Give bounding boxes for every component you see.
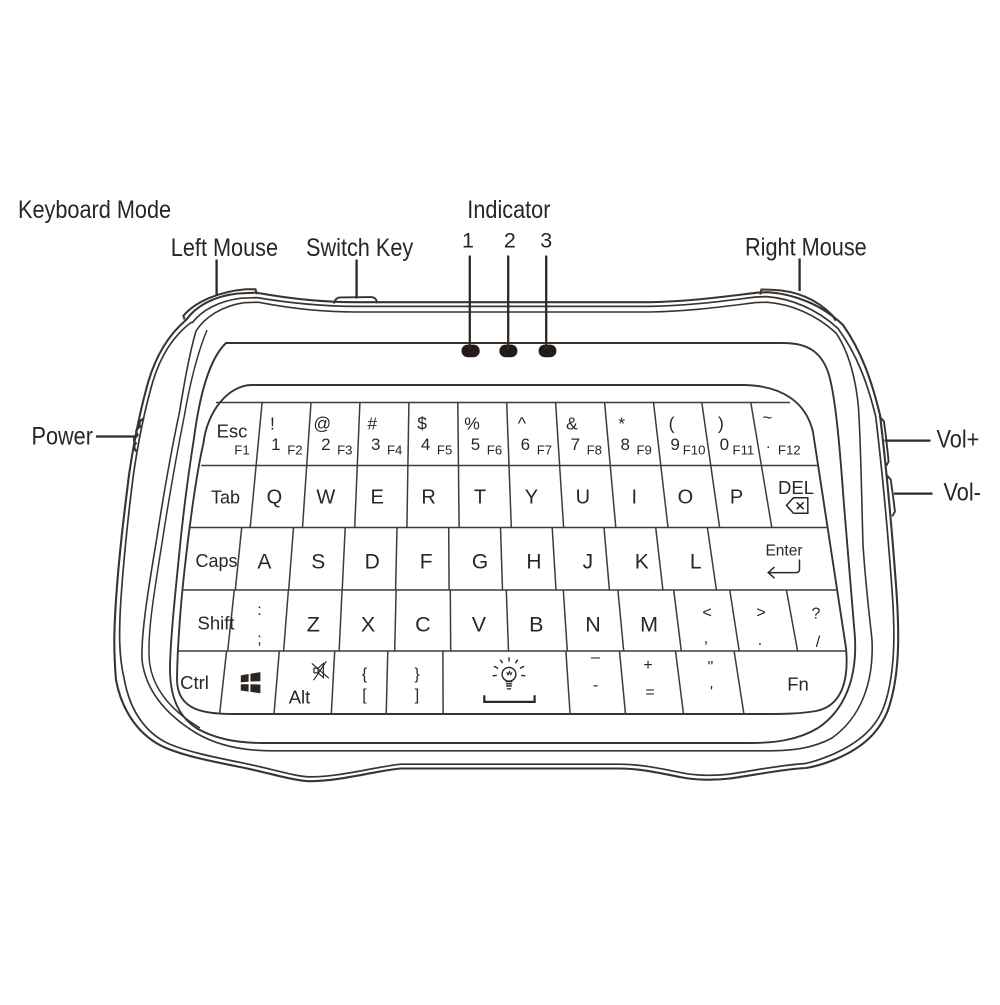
svg-text:E: E — [371, 487, 384, 509]
svg-text:F8: F8 — [587, 443, 602, 458]
svg-text:6: 6 — [521, 435, 530, 454]
svg-text:{: { — [362, 666, 368, 683]
svg-text:F3: F3 — [337, 443, 352, 458]
svg-text:<: < — [702, 605, 711, 622]
svg-text:$: $ — [417, 414, 427, 434]
svg-text:]: ] — [415, 687, 419, 704]
svg-text:?: ? — [812, 606, 821, 623]
svg-text:S: S — [311, 551, 325, 574]
svg-text:Vol+: Vol+ — [937, 425, 980, 453]
svg-text:Tab: Tab — [211, 487, 240, 507]
svg-text:–: – — [591, 649, 600, 666]
svg-text::: : — [257, 602, 261, 619]
svg-text:Alt: Alt — [289, 687, 311, 708]
svg-text:8: 8 — [620, 435, 629, 454]
svg-text:1: 1 — [462, 229, 474, 253]
svg-text:B: B — [529, 613, 543, 637]
svg-text:Power: Power — [32, 422, 94, 450]
svg-text:U: U — [576, 487, 590, 509]
svg-text:+: + — [643, 657, 652, 674]
svg-text:): ) — [718, 414, 724, 434]
svg-text:F11: F11 — [733, 443, 755, 458]
svg-text:}: } — [414, 666, 420, 683]
svg-text:F2: F2 — [287, 443, 302, 458]
svg-text:DEL: DEL — [778, 477, 814, 498]
svg-text:%: % — [464, 414, 480, 434]
svg-text:Y: Y — [525, 487, 538, 509]
svg-text:3: 3 — [540, 229, 552, 253]
svg-text:F6: F6 — [487, 443, 502, 458]
svg-text:9: 9 — [670, 435, 679, 454]
svg-text:F9: F9 — [637, 443, 652, 458]
svg-text:Ctrl: Ctrl — [180, 672, 209, 693]
svg-text:P: P — [730, 487, 743, 509]
svg-text:.: . — [758, 632, 762, 649]
svg-text:F5: F5 — [437, 443, 452, 458]
svg-text:Enter: Enter — [765, 543, 802, 560]
svg-text:/: / — [816, 634, 821, 651]
svg-text:F4: F4 — [387, 443, 402, 458]
svg-text:2: 2 — [321, 435, 330, 454]
svg-text:1: 1 — [271, 435, 280, 454]
svg-text:J: J — [583, 551, 594, 574]
svg-text:N: N — [585, 613, 601, 637]
svg-text:Keyboard Mode: Keyboard Mode — [18, 196, 171, 224]
svg-text:Q: Q — [267, 487, 283, 509]
svg-text:·: · — [766, 438, 771, 455]
svg-text:F7: F7 — [537, 443, 552, 458]
svg-text:[: [ — [362, 687, 367, 704]
svg-text:M: M — [640, 613, 658, 637]
svg-text:4: 4 — [421, 435, 430, 454]
svg-text:Vol-: Vol- — [944, 478, 981, 506]
svg-text:Esc: Esc — [217, 420, 248, 441]
svg-text:5: 5 — [471, 435, 480, 454]
svg-text:D: D — [365, 551, 380, 574]
svg-text:H: H — [526, 551, 541, 574]
svg-text:>: > — [756, 605, 765, 622]
svg-text:A: A — [257, 551, 271, 574]
svg-text:,: , — [704, 630, 708, 647]
svg-text:': ' — [710, 684, 713, 701]
svg-text:#: # — [367, 414, 377, 434]
svg-text:I: I — [632, 487, 638, 509]
svg-text:Caps: Caps — [195, 551, 237, 571]
svg-text:K: K — [635, 551, 649, 574]
svg-text:^: ^ — [518, 414, 527, 434]
svg-text:Switch Key: Switch Key — [306, 234, 414, 262]
svg-text:G: G — [472, 551, 488, 574]
svg-text:3: 3 — [371, 435, 380, 454]
svg-text:Indicator: Indicator — [467, 196, 550, 224]
svg-text:Right Mouse: Right Mouse — [745, 233, 867, 261]
svg-text:F1: F1 — [234, 443, 249, 458]
svg-text:Shift: Shift — [197, 613, 234, 634]
svg-text:0: 0 — [720, 435, 729, 454]
svg-text:O: O — [678, 487, 694, 509]
svg-text:&: & — [566, 414, 578, 434]
svg-text:*: * — [618, 414, 625, 434]
svg-text:L: L — [690, 551, 702, 574]
svg-text:=: = — [645, 684, 654, 701]
svg-text:Z: Z — [307, 613, 320, 637]
svg-text:X: X — [361, 613, 375, 637]
svg-text:-: - — [593, 677, 598, 694]
svg-text:V: V — [472, 613, 487, 637]
svg-text:~: ~ — [762, 408, 772, 427]
svg-text:F10: F10 — [683, 443, 706, 458]
svg-text:(: ( — [669, 414, 675, 434]
svg-text:;: ; — [257, 631, 261, 648]
svg-text:Fn: Fn — [787, 674, 809, 695]
svg-text:": " — [708, 659, 714, 676]
svg-text:2: 2 — [504, 229, 516, 253]
svg-text:7: 7 — [571, 435, 580, 454]
svg-text:!: ! — [270, 414, 275, 434]
svg-text:C: C — [415, 613, 431, 637]
svg-text:F12: F12 — [778, 443, 801, 458]
svg-text:W: W — [316, 487, 335, 509]
svg-text:T: T — [474, 487, 486, 509]
svg-text:R: R — [421, 487, 435, 509]
svg-text:@: @ — [313, 414, 331, 434]
svg-text:F: F — [420, 551, 433, 574]
svg-text:Left Mouse: Left Mouse — [171, 234, 278, 262]
